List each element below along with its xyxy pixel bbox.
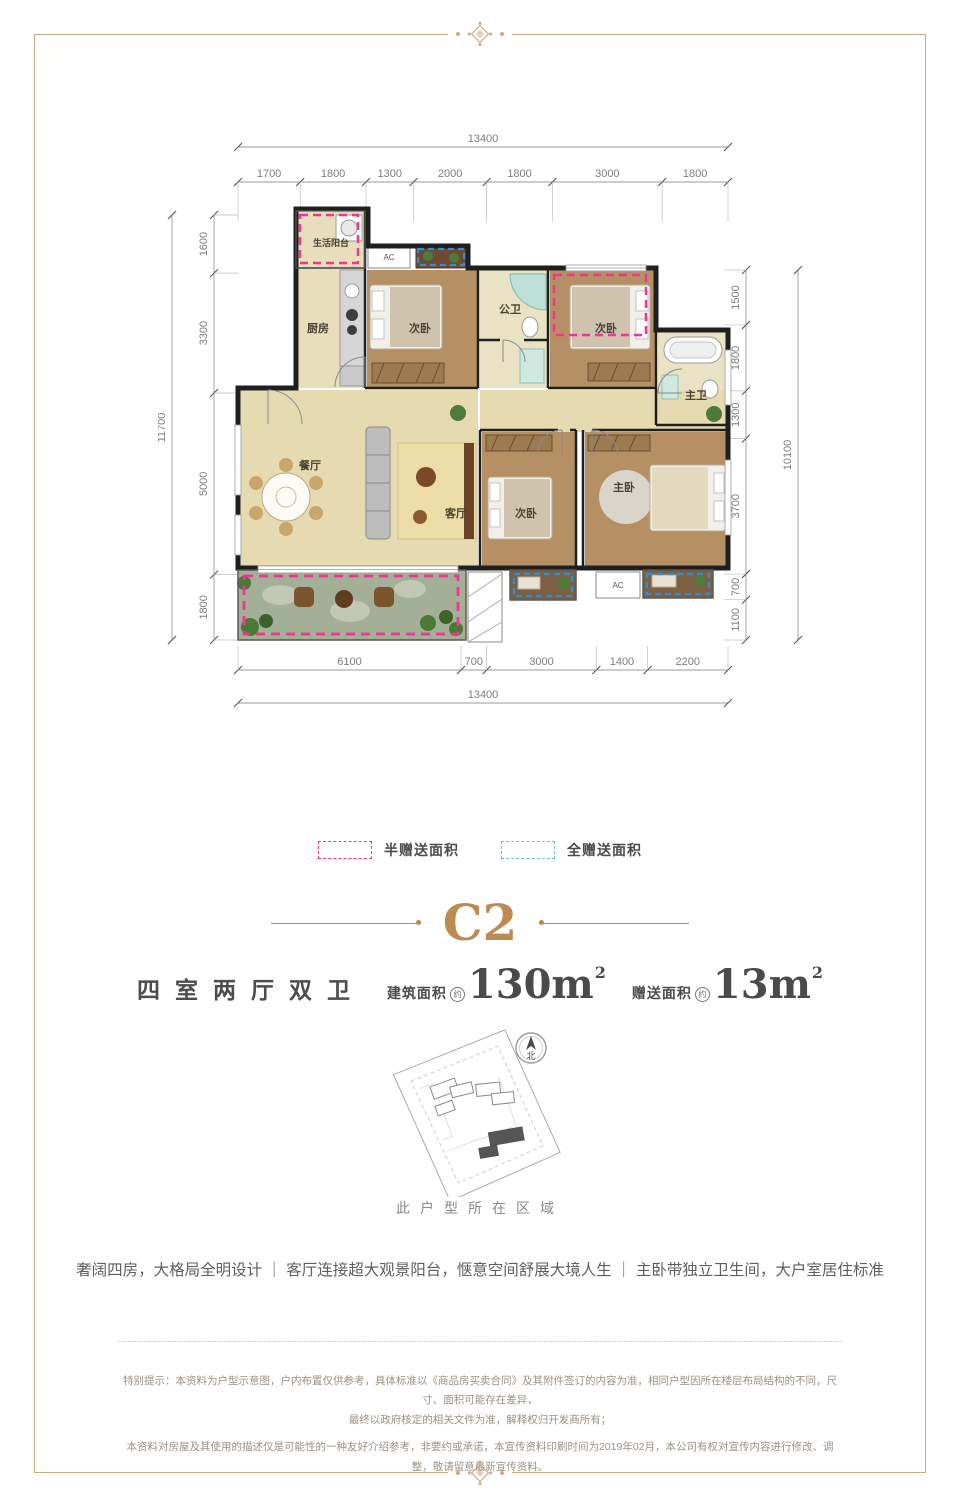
full-gift-label: 全赠送面积 <box>567 840 642 860</box>
svg-text:1800: 1800 <box>507 168 531 180</box>
disclaimer-line-1: 特别提示：本资料为户型示意图，户内布置仅供参考，具体标准以《商品房买卖合同》及其… <box>120 1372 840 1411</box>
svg-text:3000: 3000 <box>529 656 553 668</box>
label-living: 客厅 <box>444 506 467 520</box>
dim-left-total: 11700 <box>158 211 176 644</box>
svg-text:6100: 6100 <box>337 656 361 668</box>
title-rule-right <box>539 923 689 924</box>
svg-text:3000: 3000 <box>595 168 619 180</box>
disclaimer-line-3: 本资料对房屋及其使用的描述仅是可能性的一种友好介绍参考，非要约或承诺，本宣传资料… <box>120 1438 840 1477</box>
siteplan-caption: 此户型所在区域 <box>0 1198 960 1218</box>
ac-label: AC <box>383 253 394 262</box>
site-plan: 北 <box>375 1022 585 1197</box>
svg-text:3700: 3700 <box>730 494 742 518</box>
legend: 半赠送面积 全赠送面积 <box>0 840 960 860</box>
label-kitchen: 厨房 <box>307 321 329 335</box>
dim-bottom-segments: 6100700300014002200 <box>234 646 732 674</box>
spec-row: 四室两厅双卫 建筑面积 约 130m 2 赠送面积 约 13m 2 <box>0 965 960 1005</box>
dim-left-segments: 1600330050001800 <box>198 211 238 644</box>
svg-text:2000: 2000 <box>438 168 462 180</box>
gift-area-sup: 2 <box>812 963 823 982</box>
legend-item-full-gift: 全赠送面积 <box>501 840 642 860</box>
dim-top-total: 13400 <box>234 133 732 151</box>
label-dining: 餐厅 <box>298 458 321 472</box>
half-gift-label: 半赠送面积 <box>384 840 459 860</box>
tagline: 奢阔四房，大格局全明设计 ｜ 客厅连接超大观景阳台，惬意空间舒展大境人生 ｜ 主… <box>0 1258 960 1280</box>
svg-text:5000: 5000 <box>198 472 210 496</box>
label-bedroom-a: 次卧 <box>409 321 431 335</box>
gift-area-value: 13m <box>713 965 811 1005</box>
svg-text:700: 700 <box>465 656 483 668</box>
disclaimer: 特别提示：本资料为户型示意图，户内布置仅供参考，具体标准以《商品房买卖合同》及其… <box>120 1372 840 1477</box>
approx-badge: 约 <box>450 987 465 1002</box>
svg-text:1800: 1800 <box>321 168 345 180</box>
svg-text:3300: 3300 <box>198 321 210 345</box>
compass-north-label: 北 <box>526 1051 535 1061</box>
label-bedroom-b: 次卧 <box>595 321 617 335</box>
frame-ornament-top <box>448 21 512 47</box>
unit-title: C2 <box>0 898 960 948</box>
svg-text:700: 700 <box>730 578 742 596</box>
svg-text:1700: 1700 <box>257 168 281 180</box>
floor-plan: 13400 1700180013002000180030001800 11700… <box>158 125 848 725</box>
svg-text:1500: 1500 <box>730 285 742 309</box>
built-area-sup: 2 <box>595 963 606 982</box>
label-bath-master: 主卫 <box>685 388 707 402</box>
unit-code: C2 <box>443 898 518 948</box>
dashed-divider <box>118 1341 842 1342</box>
layout-text: 四室两厅双卫 <box>137 971 365 1005</box>
dim-right-total: 10100 <box>782 266 802 644</box>
label-service-balcony: 生活阳台 <box>313 237 349 248</box>
svg-text:1800: 1800 <box>683 168 707 180</box>
diamond-ornament-icon <box>467 21 493 47</box>
approx-badge: 约 <box>695 987 710 1002</box>
svg-text:1300: 1300 <box>730 402 742 426</box>
label-master-bedroom: 主卧 <box>613 480 635 494</box>
svg-text:13400: 13400 <box>468 133 499 145</box>
built-area-label: 建筑面积 <box>387 983 447 1003</box>
svg-text:1100: 1100 <box>730 608 742 632</box>
label-bedroom-c: 次卧 <box>515 506 537 520</box>
ornament-dot <box>456 32 460 36</box>
built-area-value: 130m <box>468 965 594 1005</box>
disclaimer-line-2: 最终以政府核定的相关文件为准，解释权归开发商所有； <box>120 1411 840 1430</box>
svg-text:2200: 2200 <box>676 656 700 668</box>
svg-text:1600: 1600 <box>198 232 210 256</box>
half-gift-swatch <box>318 841 372 859</box>
gift-area: 赠送面积 约 13m 2 <box>632 965 823 1005</box>
svg-text:1300: 1300 <box>378 168 402 180</box>
compass-icon: 北 <box>516 1033 546 1063</box>
built-area: 建筑面积 约 130m 2 <box>387 965 606 1005</box>
ornament-dot <box>500 32 504 36</box>
ac-label: AC <box>612 581 623 590</box>
dim-bottom-total: 13400 <box>234 689 732 707</box>
svg-text:1800: 1800 <box>730 346 742 370</box>
svg-text:1400: 1400 <box>610 656 634 668</box>
legend-item-half-gift: 半赠送面积 <box>318 840 459 860</box>
svg-text:10100: 10100 <box>782 440 794 471</box>
full-gift-swatch <box>501 841 555 859</box>
gift-area-label: 赠送面积 <box>632 983 692 1003</box>
label-bath-public: 公卫 <box>499 303 521 316</box>
svg-text:11700: 11700 <box>158 413 168 443</box>
floorplan-poster: 13400 1700180013002000180030001800 11700… <box>0 0 960 1507</box>
svg-text:1800: 1800 <box>198 595 210 619</box>
svg-text:13400: 13400 <box>468 689 499 701</box>
title-rule-left <box>271 923 421 924</box>
